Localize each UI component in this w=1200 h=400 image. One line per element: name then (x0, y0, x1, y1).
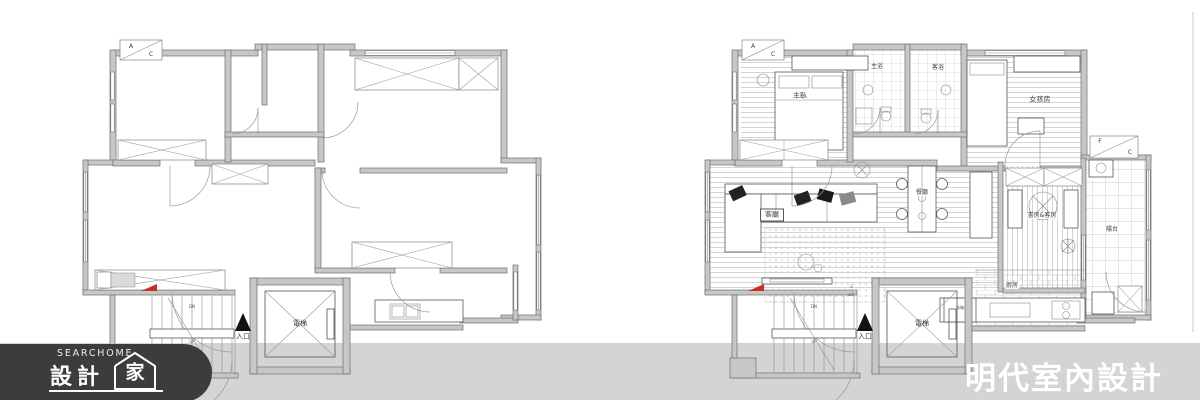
before-ac-flag-c: C (149, 52, 153, 58)
study-guest-room-label: 書房&客房 (1027, 213, 1058, 219)
entrance-arrow-icon (235, 313, 251, 331)
kitchen-label: 廚房 (1005, 283, 1019, 289)
closet-boxes-before (95, 58, 498, 290)
master-bath-label: 主浴 (870, 64, 884, 70)
dining-room-label: 餐廳 (915, 190, 929, 196)
living-room-label: 客廳 (760, 209, 784, 222)
designer-name: 明代室內設計 (965, 353, 1163, 398)
after-entrance-label: 入口 (858, 334, 872, 341)
after-ac-flag-a: A (751, 44, 755, 50)
level-zero-label: ±0 (848, 293, 854, 297)
before-entrance-label: 入口 (236, 334, 250, 341)
entrance-arrow-icon (857, 313, 873, 331)
before-stairs-down-label: DN (189, 305, 195, 309)
after-ac-flag-c: C (771, 52, 775, 58)
girls-room-label: 女孩房 (1030, 97, 1051, 104)
searchome-house-char: 家 (125, 358, 144, 385)
guest-bath-label: 客浴 (931, 65, 945, 71)
after-fc-flag-f: F (1098, 139, 1101, 145)
before-elevator-label: 電梯 (293, 321, 307, 328)
floor-plans-drawing (0, 0, 1200, 400)
level-low-label: -2 (849, 285, 853, 289)
staircase-after (730, 295, 860, 378)
logo-underline (49, 390, 163, 392)
balcony-label: 陽台 (1105, 227, 1119, 233)
after-fc-flag-c: C (1128, 150, 1132, 156)
before-ac-flag-a: A (129, 44, 133, 50)
page: A C 電梯 入口 DN UP A C F C 主臥 主浴 客浴 女孩房 客廳 … (0, 0, 1200, 400)
after-elevator-label: 電梯 (915, 321, 929, 328)
after-stairs-down-label: DN (811, 305, 817, 309)
searchome-cjk-wordmark: 設計 (50, 359, 104, 391)
fridge-label: 冰箱 (956, 306, 964, 310)
after-stairs-up-label: UP (811, 340, 816, 344)
master-bedroom-label: 主臥 (793, 93, 807, 100)
before-stairs-up-label: UP (189, 340, 194, 344)
